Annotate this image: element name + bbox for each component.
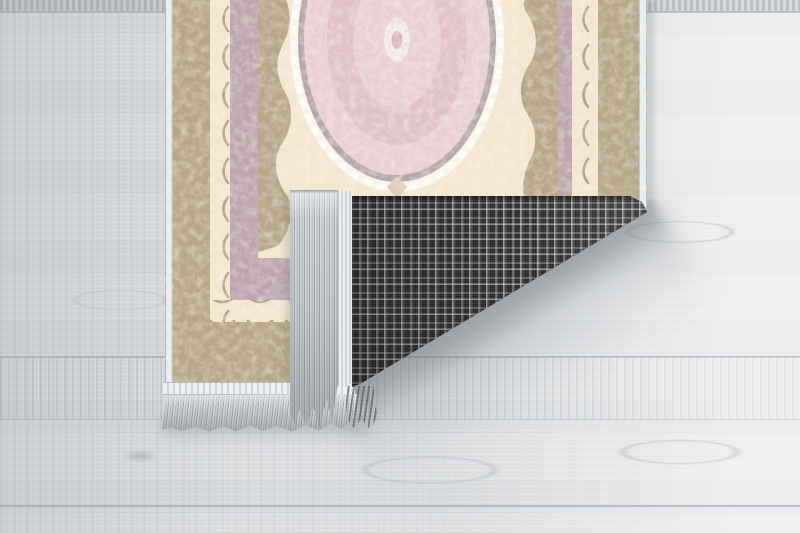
flap-fringe <box>290 190 338 428</box>
flap-binding <box>338 191 353 390</box>
product-photo-scene <box>0 0 800 533</box>
plank-rough-band <box>0 357 800 419</box>
plank-seam <box>0 419 800 420</box>
plank-seam <box>0 505 800 507</box>
